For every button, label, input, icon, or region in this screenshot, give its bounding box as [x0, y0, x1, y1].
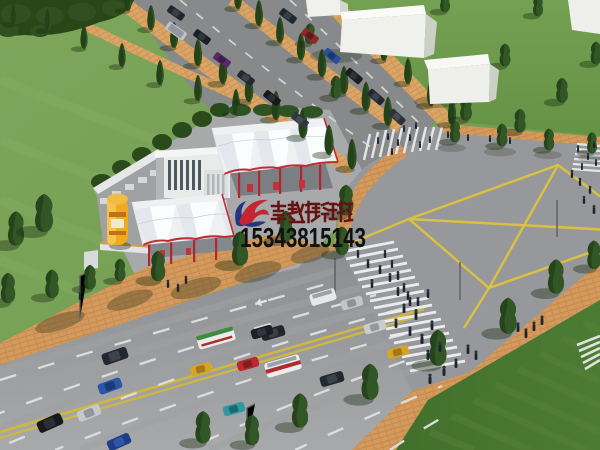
- svg-text:15343815143: 15343815143: [240, 222, 366, 253]
